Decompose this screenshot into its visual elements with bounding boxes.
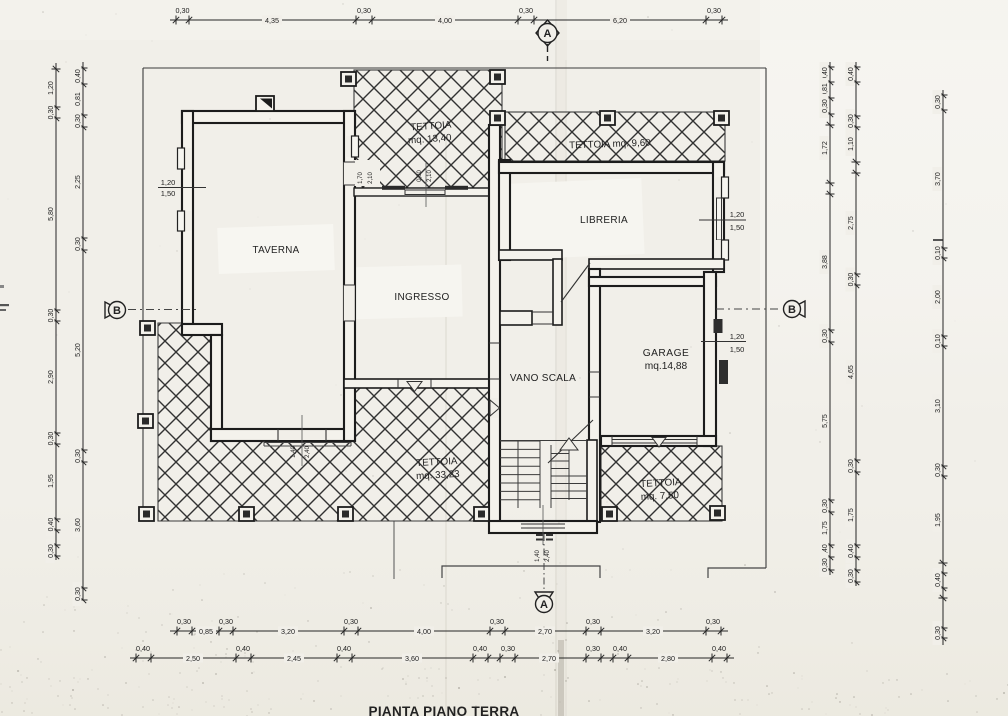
svg-text:0,40: 0,40 xyxy=(712,644,726,653)
svg-text:0,30: 0,30 xyxy=(48,106,55,120)
svg-text:1,95: 1,95 xyxy=(935,513,942,527)
svg-text:2,10: 2,10 xyxy=(368,172,374,184)
svg-text:1,20: 1,20 xyxy=(161,178,176,187)
svg-text:4,35: 4,35 xyxy=(265,16,279,25)
svg-text:3,20: 3,20 xyxy=(281,627,295,636)
svg-text:4,00: 4,00 xyxy=(417,627,431,636)
svg-text:0,30: 0,30 xyxy=(75,237,82,251)
svg-text:LIBRERIA: LIBRERIA xyxy=(580,215,628,226)
svg-text:0,40: 0,40 xyxy=(136,644,150,653)
svg-text:1,70: 1,70 xyxy=(358,172,364,184)
svg-text:B: B xyxy=(113,305,121,317)
svg-text:0,30: 0,30 xyxy=(75,114,82,128)
svg-text:1,72: 1,72 xyxy=(822,141,829,155)
svg-text:mq. 7,50: mq. 7,50 xyxy=(641,490,680,503)
svg-text:2,70: 2,70 xyxy=(542,654,556,663)
svg-text:VANO SCALA: VANO SCALA xyxy=(510,373,576,384)
svg-text:A: A xyxy=(544,28,552,40)
svg-text:0,30: 0,30 xyxy=(219,617,233,626)
svg-text:0,30: 0,30 xyxy=(357,6,371,15)
svg-text:0,30: 0,30 xyxy=(75,587,82,601)
svg-text:0,30: 0,30 xyxy=(848,569,855,583)
svg-text:0,30: 0,30 xyxy=(519,6,533,15)
svg-text:0,30: 0,30 xyxy=(706,617,720,626)
svg-text:0,30: 0,30 xyxy=(707,6,721,15)
svg-text:0,30: 0,30 xyxy=(344,617,358,626)
svg-text:0,40: 0,40 xyxy=(848,67,855,81)
svg-text:1,20: 1,20 xyxy=(48,81,55,95)
svg-text:PIANTA PIANO TERRA: PIANTA PIANO TERRA xyxy=(369,704,520,716)
svg-text:0,30: 0,30 xyxy=(176,6,190,15)
svg-text:B: B xyxy=(788,304,796,316)
svg-text:0,30: 0,30 xyxy=(822,558,829,572)
svg-text:5,20: 5,20 xyxy=(75,343,82,357)
svg-text:2,40: 2,40 xyxy=(305,446,311,458)
svg-text:3,10: 3,10 xyxy=(935,399,942,413)
svg-text:0,30: 0,30 xyxy=(935,95,942,109)
svg-text:0,40: 0,40 xyxy=(75,69,82,83)
svg-text:0,80: 0,80 xyxy=(417,170,423,182)
svg-text:2,45: 2,45 xyxy=(287,654,301,663)
svg-text:2,25: 2,25 xyxy=(75,175,82,189)
svg-text:0,40: 0,40 xyxy=(48,518,55,532)
svg-text:GARAGE: GARAGE xyxy=(643,348,690,359)
svg-text:2,70: 2,70 xyxy=(538,627,552,636)
svg-text:0,30: 0,30 xyxy=(490,617,504,626)
svg-text:0,30: 0,30 xyxy=(822,99,829,113)
svg-text:6,20: 6,20 xyxy=(613,16,627,25)
svg-text:0,30: 0,30 xyxy=(48,309,55,323)
svg-text:2,40: 2,40 xyxy=(545,550,551,562)
svg-text:4,65: 4,65 xyxy=(848,365,855,379)
svg-text:3,60: 3,60 xyxy=(405,654,419,663)
svg-text:3,70: 3,70 xyxy=(935,172,942,186)
svg-text:1,75: 1,75 xyxy=(848,508,855,522)
svg-text:3,60: 3,60 xyxy=(75,518,82,532)
svg-text:0,85: 0,85 xyxy=(199,627,213,636)
svg-text:0,30: 0,30 xyxy=(75,449,82,463)
svg-text:0,40: 0,40 xyxy=(473,644,487,653)
svg-text:5,80: 5,80 xyxy=(48,207,55,221)
svg-text:0,10: 0,10 xyxy=(935,246,942,260)
svg-text:0,30: 0,30 xyxy=(586,644,600,653)
svg-text:0,40: 0,40 xyxy=(613,644,627,653)
svg-text:0,30: 0,30 xyxy=(822,329,829,343)
svg-text:0,30: 0,30 xyxy=(848,459,855,473)
svg-text:0,30: 0,30 xyxy=(848,273,855,287)
svg-text:0,30: 0,30 xyxy=(935,626,942,640)
svg-text:2,10: 2,10 xyxy=(427,170,433,182)
svg-text:1,20: 1,20 xyxy=(730,332,745,341)
svg-text:0,30: 0,30 xyxy=(848,114,855,128)
svg-text:0,40: 0,40 xyxy=(337,644,351,653)
svg-text:1,40: 1,40 xyxy=(291,446,297,458)
svg-text:0,81: 0,81 xyxy=(75,92,82,106)
svg-text:1,50: 1,50 xyxy=(730,223,745,232)
svg-text:0,30: 0,30 xyxy=(48,544,55,558)
svg-text:0,30: 0,30 xyxy=(48,432,55,446)
svg-text:0,40: 0,40 xyxy=(848,544,855,558)
svg-text:1,40: 1,40 xyxy=(535,550,541,562)
svg-text:0,30: 0,30 xyxy=(935,463,942,477)
svg-text:A: A xyxy=(540,599,548,611)
svg-text:mq. 33,23: mq. 33,23 xyxy=(416,469,461,482)
svg-text:3,88: 3,88 xyxy=(822,255,829,269)
svg-text:TAVERNA: TAVERNA xyxy=(253,245,300,256)
svg-text:2,00: 2,00 xyxy=(935,290,942,304)
svg-text:mq.14,88: mq.14,88 xyxy=(645,361,688,372)
svg-text:1,20: 1,20 xyxy=(730,210,745,219)
svg-text:2,80: 2,80 xyxy=(661,654,675,663)
svg-text:0,30: 0,30 xyxy=(822,499,829,513)
svg-text:1,95: 1,95 xyxy=(48,474,55,488)
svg-text:1,10: 1,10 xyxy=(848,137,855,151)
svg-text:TETTOIA: TETTOIA xyxy=(416,456,458,469)
svg-text:0,10: 0,10 xyxy=(935,334,942,348)
svg-text:1,75: 1,75 xyxy=(822,521,829,535)
svg-text:INGRESSO: INGRESSO xyxy=(394,292,449,303)
svg-text:0,30: 0,30 xyxy=(501,644,515,653)
svg-text:1,50: 1,50 xyxy=(730,345,745,354)
svg-text:0,40: 0,40 xyxy=(935,573,942,587)
svg-text:4,00: 4,00 xyxy=(438,16,452,25)
svg-text:2,75: 2,75 xyxy=(848,216,855,230)
svg-text:TETTOIA: TETTOIA xyxy=(640,477,682,490)
svg-text:2,90: 2,90 xyxy=(48,370,55,384)
svg-text:3,20: 3,20 xyxy=(646,627,660,636)
svg-text:2,50: 2,50 xyxy=(186,654,200,663)
svg-text:5,75: 5,75 xyxy=(822,414,829,428)
svg-text:0,30: 0,30 xyxy=(586,617,600,626)
svg-text:1,50: 1,50 xyxy=(161,189,176,198)
svg-text:0,30: 0,30 xyxy=(177,617,191,626)
svg-text:0,40: 0,40 xyxy=(236,644,250,653)
